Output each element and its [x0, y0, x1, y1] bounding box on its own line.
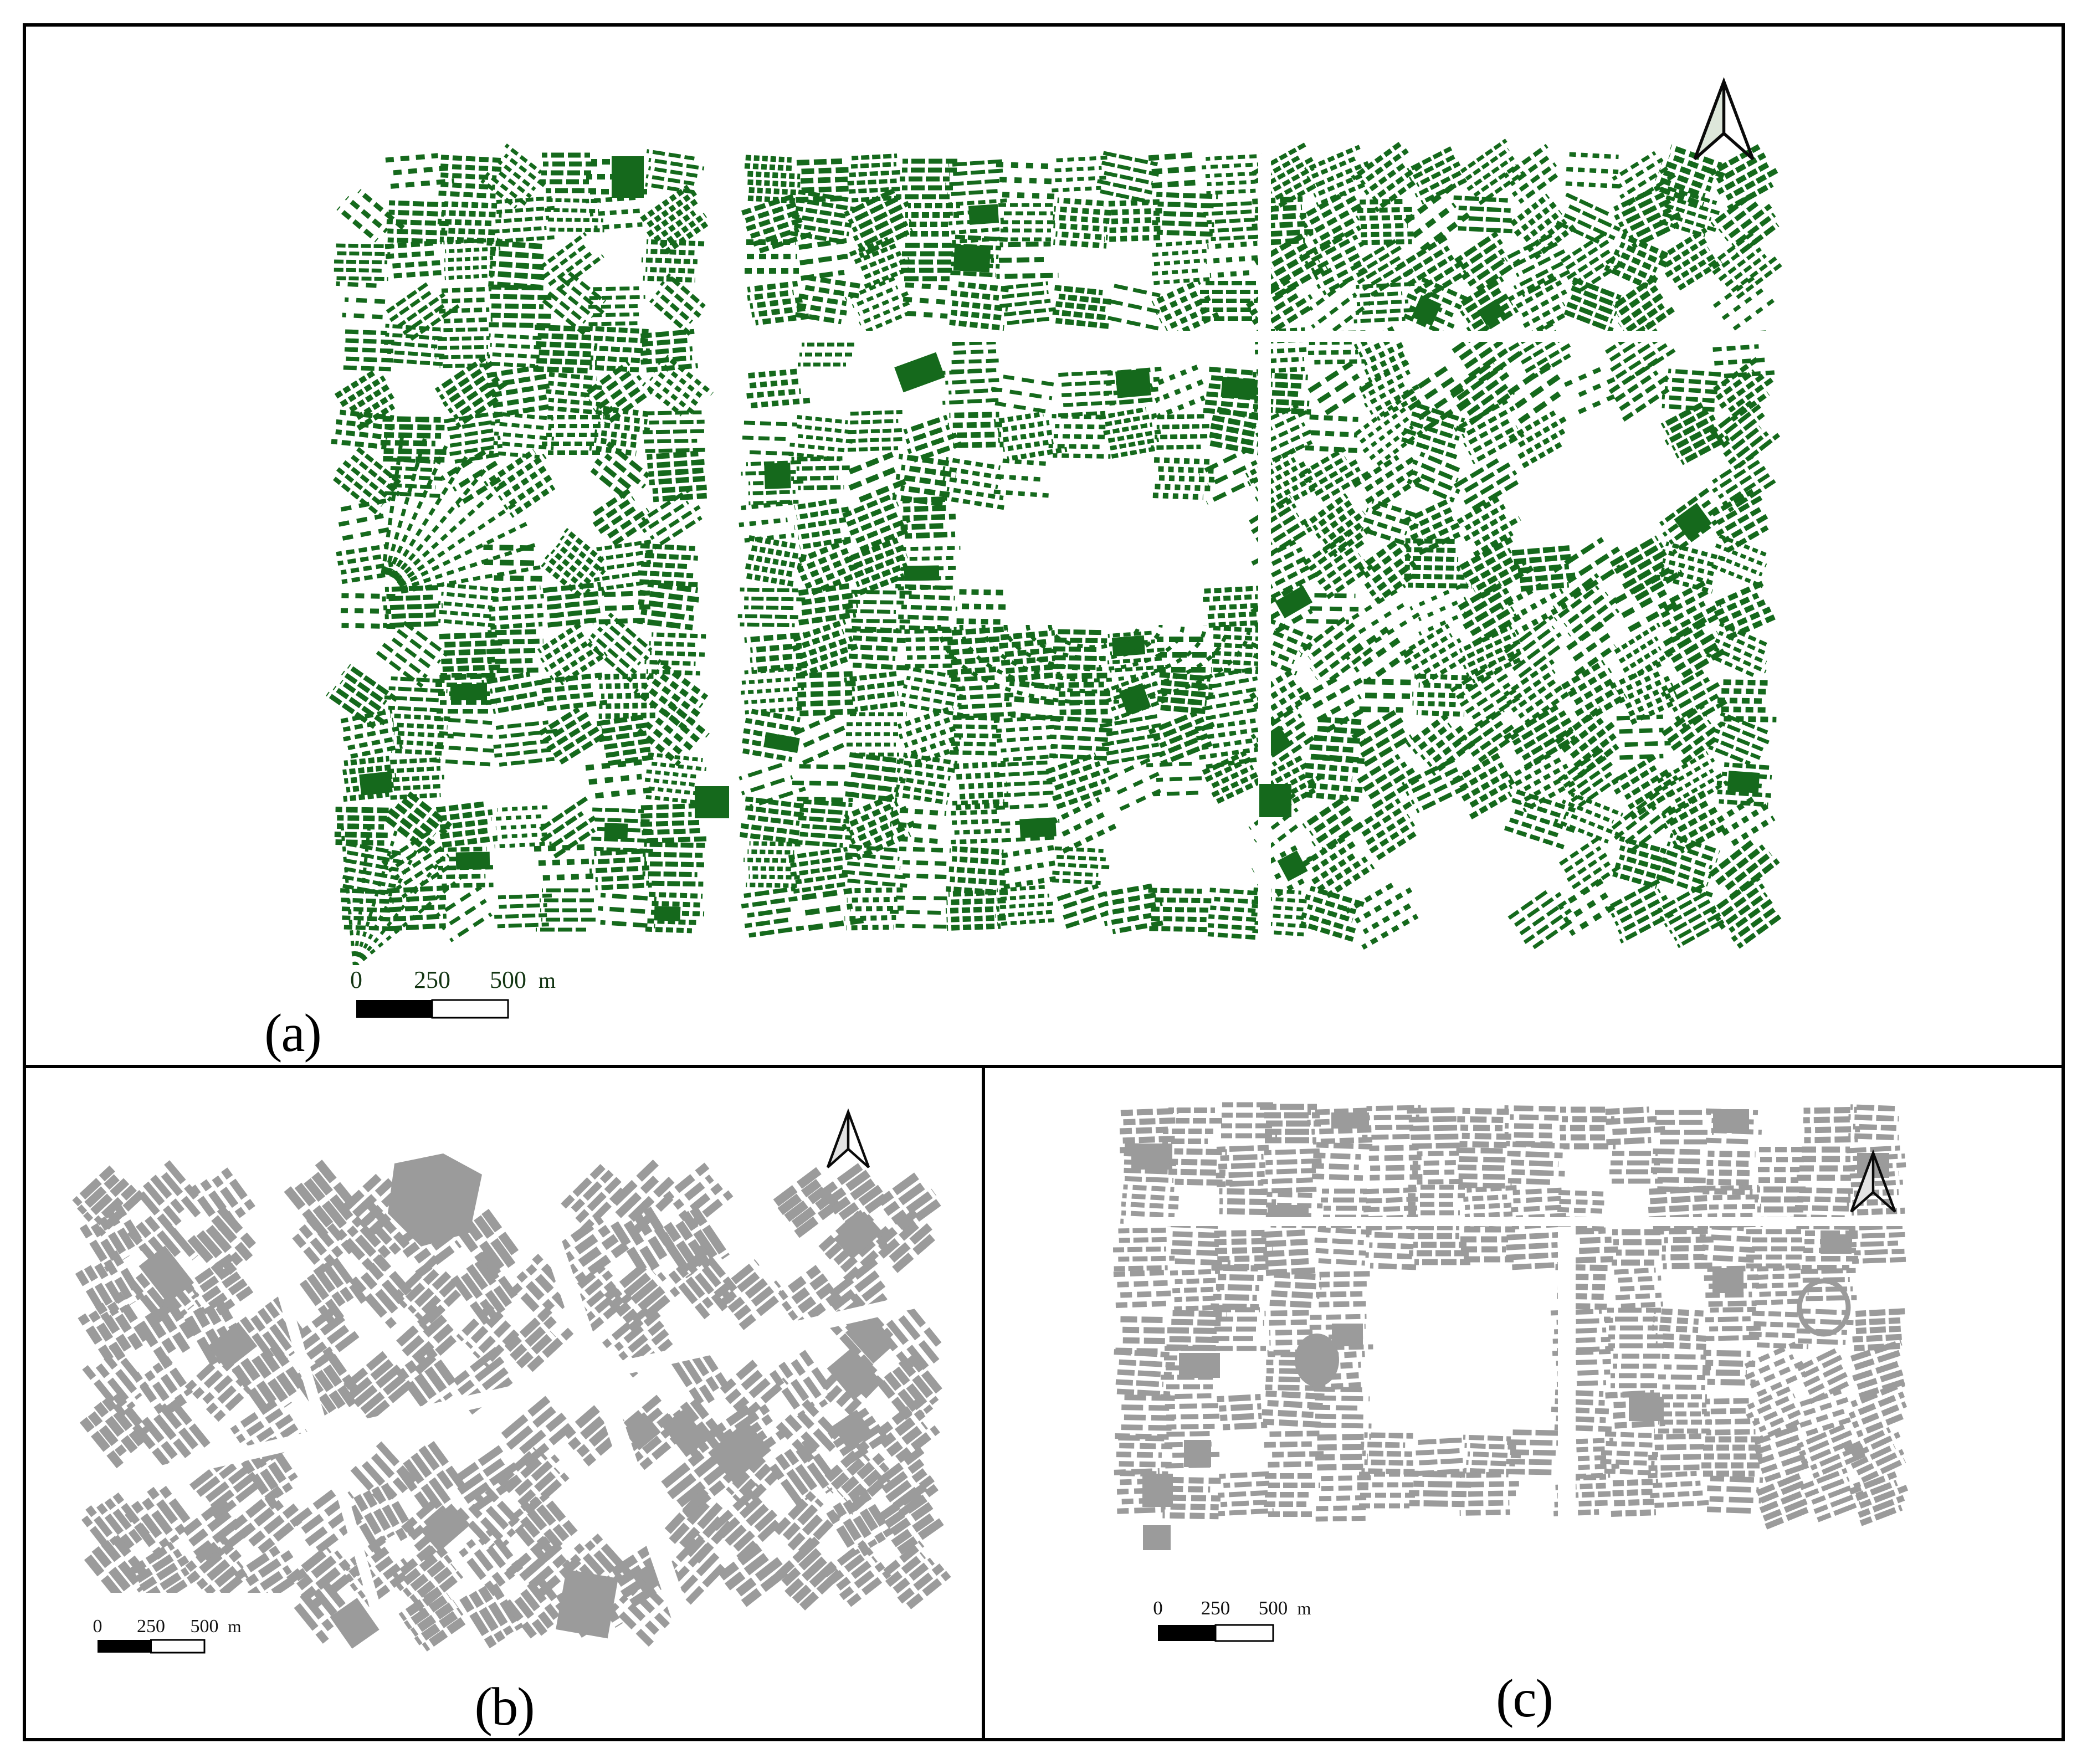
svg-text:500: 500 [191, 1616, 219, 1637]
svg-text:0: 0 [350, 966, 362, 993]
svg-text:m: m [539, 968, 556, 993]
svg-text:(c): (c) [1496, 1669, 1552, 1728]
svg-text:250: 250 [137, 1616, 165, 1637]
svg-text:0: 0 [1153, 1597, 1163, 1619]
svg-text:250: 250 [414, 966, 450, 993]
svg-text:0: 0 [93, 1616, 102, 1637]
svg-text:(b): (b) [474, 1677, 534, 1736]
svg-text:m: m [228, 1617, 241, 1636]
svg-text:(a): (a) [264, 1003, 321, 1063]
svg-text:500: 500 [1259, 1597, 1288, 1619]
svg-text:250: 250 [1201, 1597, 1230, 1619]
svg-text:m: m [1298, 1598, 1311, 1618]
svg-text:500: 500 [490, 966, 526, 993]
